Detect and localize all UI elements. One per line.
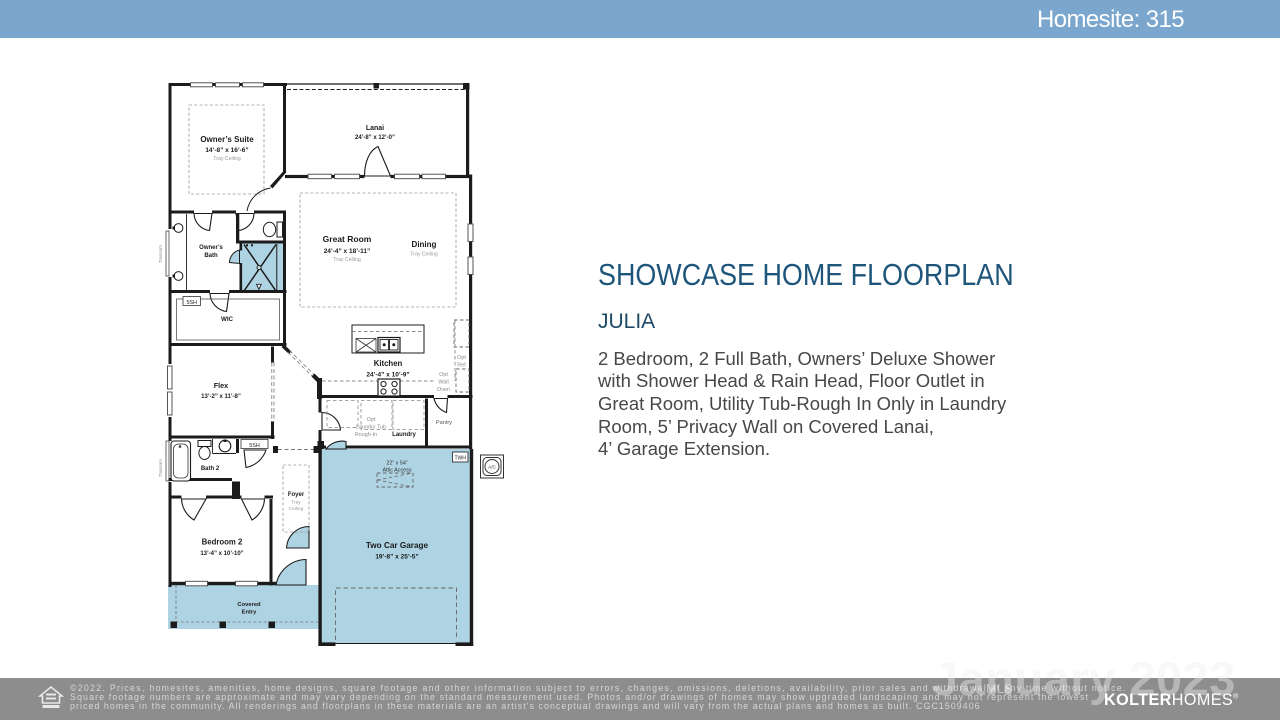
svg-text:14’-8” x 16’-6”: 14’-8” x 16’-6” <box>205 147 248 154</box>
svg-text:Lanai: Lanai <box>366 125 384 132</box>
svg-text:Attic Access: Attic Access <box>382 468 411 474</box>
svg-text:Laundry Tub: Laundry Tub <box>356 425 386 431</box>
svg-text:Covered: Covered <box>237 602 261 608</box>
svg-text:A/C: A/C <box>488 465 496 470</box>
svg-text:5SH: 5SH <box>249 443 260 449</box>
svg-text:Tray Ceiling: Tray Ceiling <box>213 156 241 162</box>
svg-text:Entry: Entry <box>242 610 258 616</box>
svg-text:Bath 2: Bath 2 <box>201 466 220 472</box>
svg-text:TWH: TWH <box>455 456 467 462</box>
svg-text:Oven: Oven <box>437 387 450 393</box>
svg-text:Flex: Flex <box>214 381 228 390</box>
svg-text:Laundry: Laundry <box>392 432 416 438</box>
svg-text:Opt: Opt <box>439 372 448 378</box>
svg-text:Ceiling: Ceiling <box>289 506 304 512</box>
svg-text:Transom: Transom <box>158 459 163 477</box>
svg-text:Great Room: Great Room <box>323 234 372 244</box>
svg-text:22” x 54”: 22” x 54” <box>386 461 407 467</box>
svg-text:Ref: Ref <box>457 363 466 369</box>
svg-text:13’-2” x 11’-8”: 13’-2” x 11’-8” <box>201 394 241 400</box>
svg-text:24’-4” x 10’-9”: 24’-4” x 10’-9” <box>366 372 409 379</box>
svg-text:Dining: Dining <box>412 240 437 249</box>
svg-text:24’-4” x 18’-11”: 24’-4” x 18’-11” <box>324 248 371 255</box>
svg-text:Bedroom 2: Bedroom 2 <box>202 538 243 547</box>
svg-text:Pantry: Pantry <box>436 420 452 426</box>
svg-text:Tray Ceiling: Tray Ceiling <box>333 257 361 263</box>
svg-text:19’-8” x 25’-5”: 19’-8” x 25’-5” <box>375 554 418 561</box>
svg-text:Tray: Tray <box>291 500 301 506</box>
svg-text:13’-4” x 10’-10”: 13’-4” x 10’-10” <box>200 551 243 557</box>
svg-text:Opt: Opt <box>367 417 376 423</box>
svg-text:Owner’s Suite: Owner’s Suite <box>200 135 254 144</box>
svg-text:Kitchen: Kitchen <box>374 359 403 368</box>
svg-text:Bath: Bath <box>204 253 218 259</box>
svg-text:Foyer: Foyer <box>288 492 305 498</box>
svg-text:Tray Ceiling: Tray Ceiling <box>410 252 438 258</box>
svg-text:5SH: 5SH <box>186 300 197 306</box>
svg-text:Opt: Opt <box>457 355 466 361</box>
svg-text:Owner’s: Owner’s <box>199 245 223 251</box>
svg-text:Two Car Garage: Two Car Garage <box>366 541 429 550</box>
svg-text:24’-8” x 12’-0”: 24’-8” x 12’-0” <box>355 135 395 141</box>
svg-text:Rough-In: Rough-In <box>355 432 377 438</box>
svg-text:Wall: Wall <box>438 380 448 386</box>
svg-text:WIC: WIC <box>221 316 234 323</box>
svg-text:Transom: Transom <box>158 245 163 263</box>
